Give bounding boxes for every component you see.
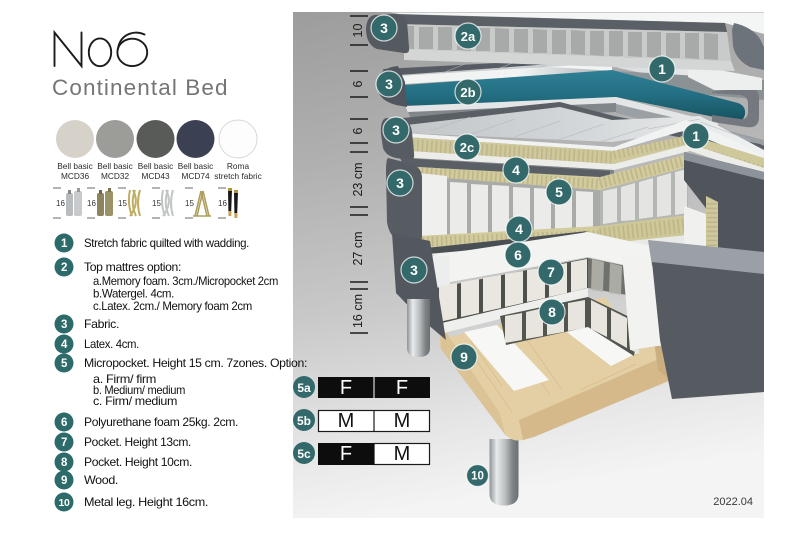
svg-text:3: 3 — [392, 122, 400, 138]
svg-text:Bell basic: Bell basic — [97, 161, 133, 171]
svg-text:16: 16 — [87, 199, 96, 208]
svg-text:6: 6 — [351, 80, 365, 87]
svg-text:Continental Bed: Continental Bed — [52, 75, 229, 100]
svg-text:5c: 5c — [297, 447, 311, 461]
svg-text:Micropocket. Height 15 cm. 7zo: Micropocket. Height 15 cm. 7zones. Optio… — [84, 356, 307, 370]
svg-text:2a: 2a — [461, 29, 476, 44]
svg-text:Pocket. Height 10cm.: Pocket. Height 10cm. — [84, 455, 192, 469]
svg-text:15: 15 — [152, 199, 161, 208]
svg-text:Top mattres option:: Top mattres option: — [84, 260, 181, 274]
svg-text:c. Firm/ medium: c. Firm/ medium — [93, 394, 177, 408]
svg-text:1: 1 — [61, 238, 68, 250]
svg-text:7: 7 — [547, 264, 555, 280]
svg-text:M: M — [394, 443, 411, 465]
svg-text:Stretch fabric quilted with wa: Stretch fabric quilted with wadding. — [84, 236, 249, 250]
svg-text:8: 8 — [61, 457, 68, 469]
svg-text:16: 16 — [218, 199, 227, 208]
svg-text:8: 8 — [548, 304, 556, 320]
svg-text:F: F — [396, 377, 408, 399]
svg-text:Bell basic: Bell basic — [57, 161, 93, 171]
svg-text:5: 5 — [555, 184, 563, 200]
svg-text:2022.04: 2022.04 — [713, 496, 753, 508]
svg-text:6: 6 — [61, 417, 67, 429]
svg-text:Bell basic: Bell basic — [138, 161, 174, 171]
svg-text:MCD43: MCD43 — [141, 171, 170, 181]
svg-text:10: 10 — [471, 471, 484, 483]
svg-text:16 cm: 16 cm — [351, 294, 365, 328]
svg-text:5: 5 — [61, 358, 68, 370]
svg-text:3: 3 — [61, 319, 67, 331]
svg-text:Pocket. Height 13cm.: Pocket. Height 13cm. — [84, 435, 191, 449]
svg-text:MCD32: MCD32 — [101, 171, 130, 181]
svg-text:Wood.: Wood. — [84, 473, 118, 487]
svg-text:3: 3 — [385, 76, 393, 92]
svg-text:4: 4 — [515, 221, 523, 237]
svg-text:2c: 2c — [460, 140, 474, 155]
svg-text:7: 7 — [61, 437, 67, 449]
svg-text:5a: 5a — [297, 381, 311, 395]
svg-text:2b: 2b — [460, 85, 475, 100]
svg-text:9: 9 — [460, 349, 468, 365]
svg-text:6: 6 — [514, 247, 522, 263]
svg-text:16: 16 — [56, 199, 65, 208]
svg-text:27 cm: 27 cm — [351, 231, 365, 265]
svg-text:9: 9 — [61, 475, 67, 487]
svg-text:15: 15 — [185, 199, 194, 208]
svg-text:stretch fabric: stretch fabric — [214, 171, 262, 181]
svg-text:M: M — [338, 410, 355, 432]
svg-text:4: 4 — [61, 339, 68, 351]
svg-text:MCD36: MCD36 — [61, 171, 90, 181]
svg-text:Polyurethane foam 25kg. 2cm.: Polyurethane foam 25kg. 2cm. — [84, 415, 238, 429]
svg-text:Metal leg. Height 16cm.: Metal leg. Height 16cm. — [84, 495, 208, 509]
svg-text:6: 6 — [351, 127, 365, 134]
svg-text:4: 4 — [512, 162, 520, 178]
svg-text:F: F — [340, 443, 352, 465]
svg-text:5b: 5b — [297, 414, 311, 428]
svg-text:15: 15 — [118, 199, 127, 208]
svg-text:3: 3 — [380, 20, 388, 36]
svg-text:3: 3 — [396, 175, 404, 191]
svg-text:c.Latex. 2cm./ Memory foam 2cm: c.Latex. 2cm./ Memory foam 2cm — [93, 299, 252, 313]
svg-text:MCD74: MCD74 — [181, 171, 210, 181]
svg-text:2: 2 — [61, 262, 67, 274]
svg-text:Latex. 4cm.: Latex. 4cm. — [84, 337, 139, 351]
svg-text:Fabric.: Fabric. — [84, 317, 119, 331]
svg-text:10: 10 — [59, 497, 70, 509]
svg-text:Bell basic: Bell basic — [178, 161, 214, 171]
svg-text:F: F — [340, 377, 352, 399]
svg-text:1: 1 — [692, 128, 700, 144]
svg-text:Roma: Roma — [227, 161, 250, 171]
svg-text:M: M — [394, 410, 411, 432]
svg-text:3: 3 — [410, 262, 418, 278]
svg-text:10: 10 — [351, 24, 365, 38]
svg-text:23 cm: 23 cm — [351, 162, 365, 196]
svg-text:1: 1 — [658, 61, 666, 77]
